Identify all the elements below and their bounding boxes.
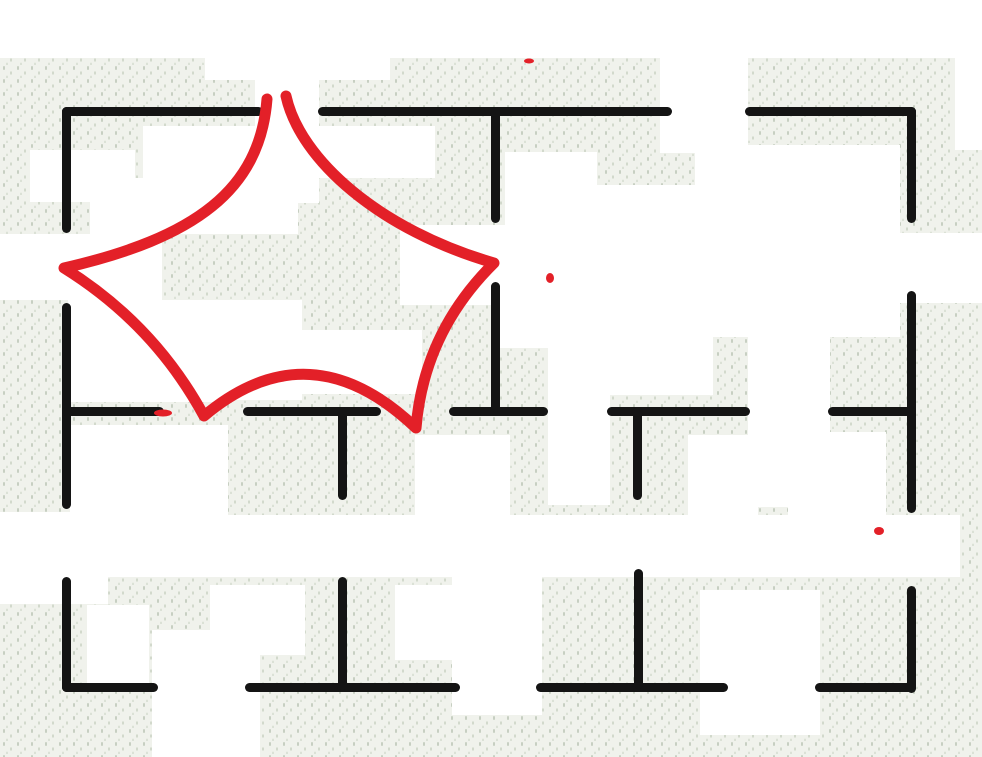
floorplan-canvas: [0, 0, 982, 757]
red-ink-speck: [874, 527, 884, 535]
red-ink-speck: [154, 410, 172, 417]
red-star-outline: [64, 96, 494, 428]
red-star-annotation: [0, 0, 982, 757]
red-ink-speck: [546, 273, 554, 283]
red-ink-speck: [524, 59, 534, 64]
